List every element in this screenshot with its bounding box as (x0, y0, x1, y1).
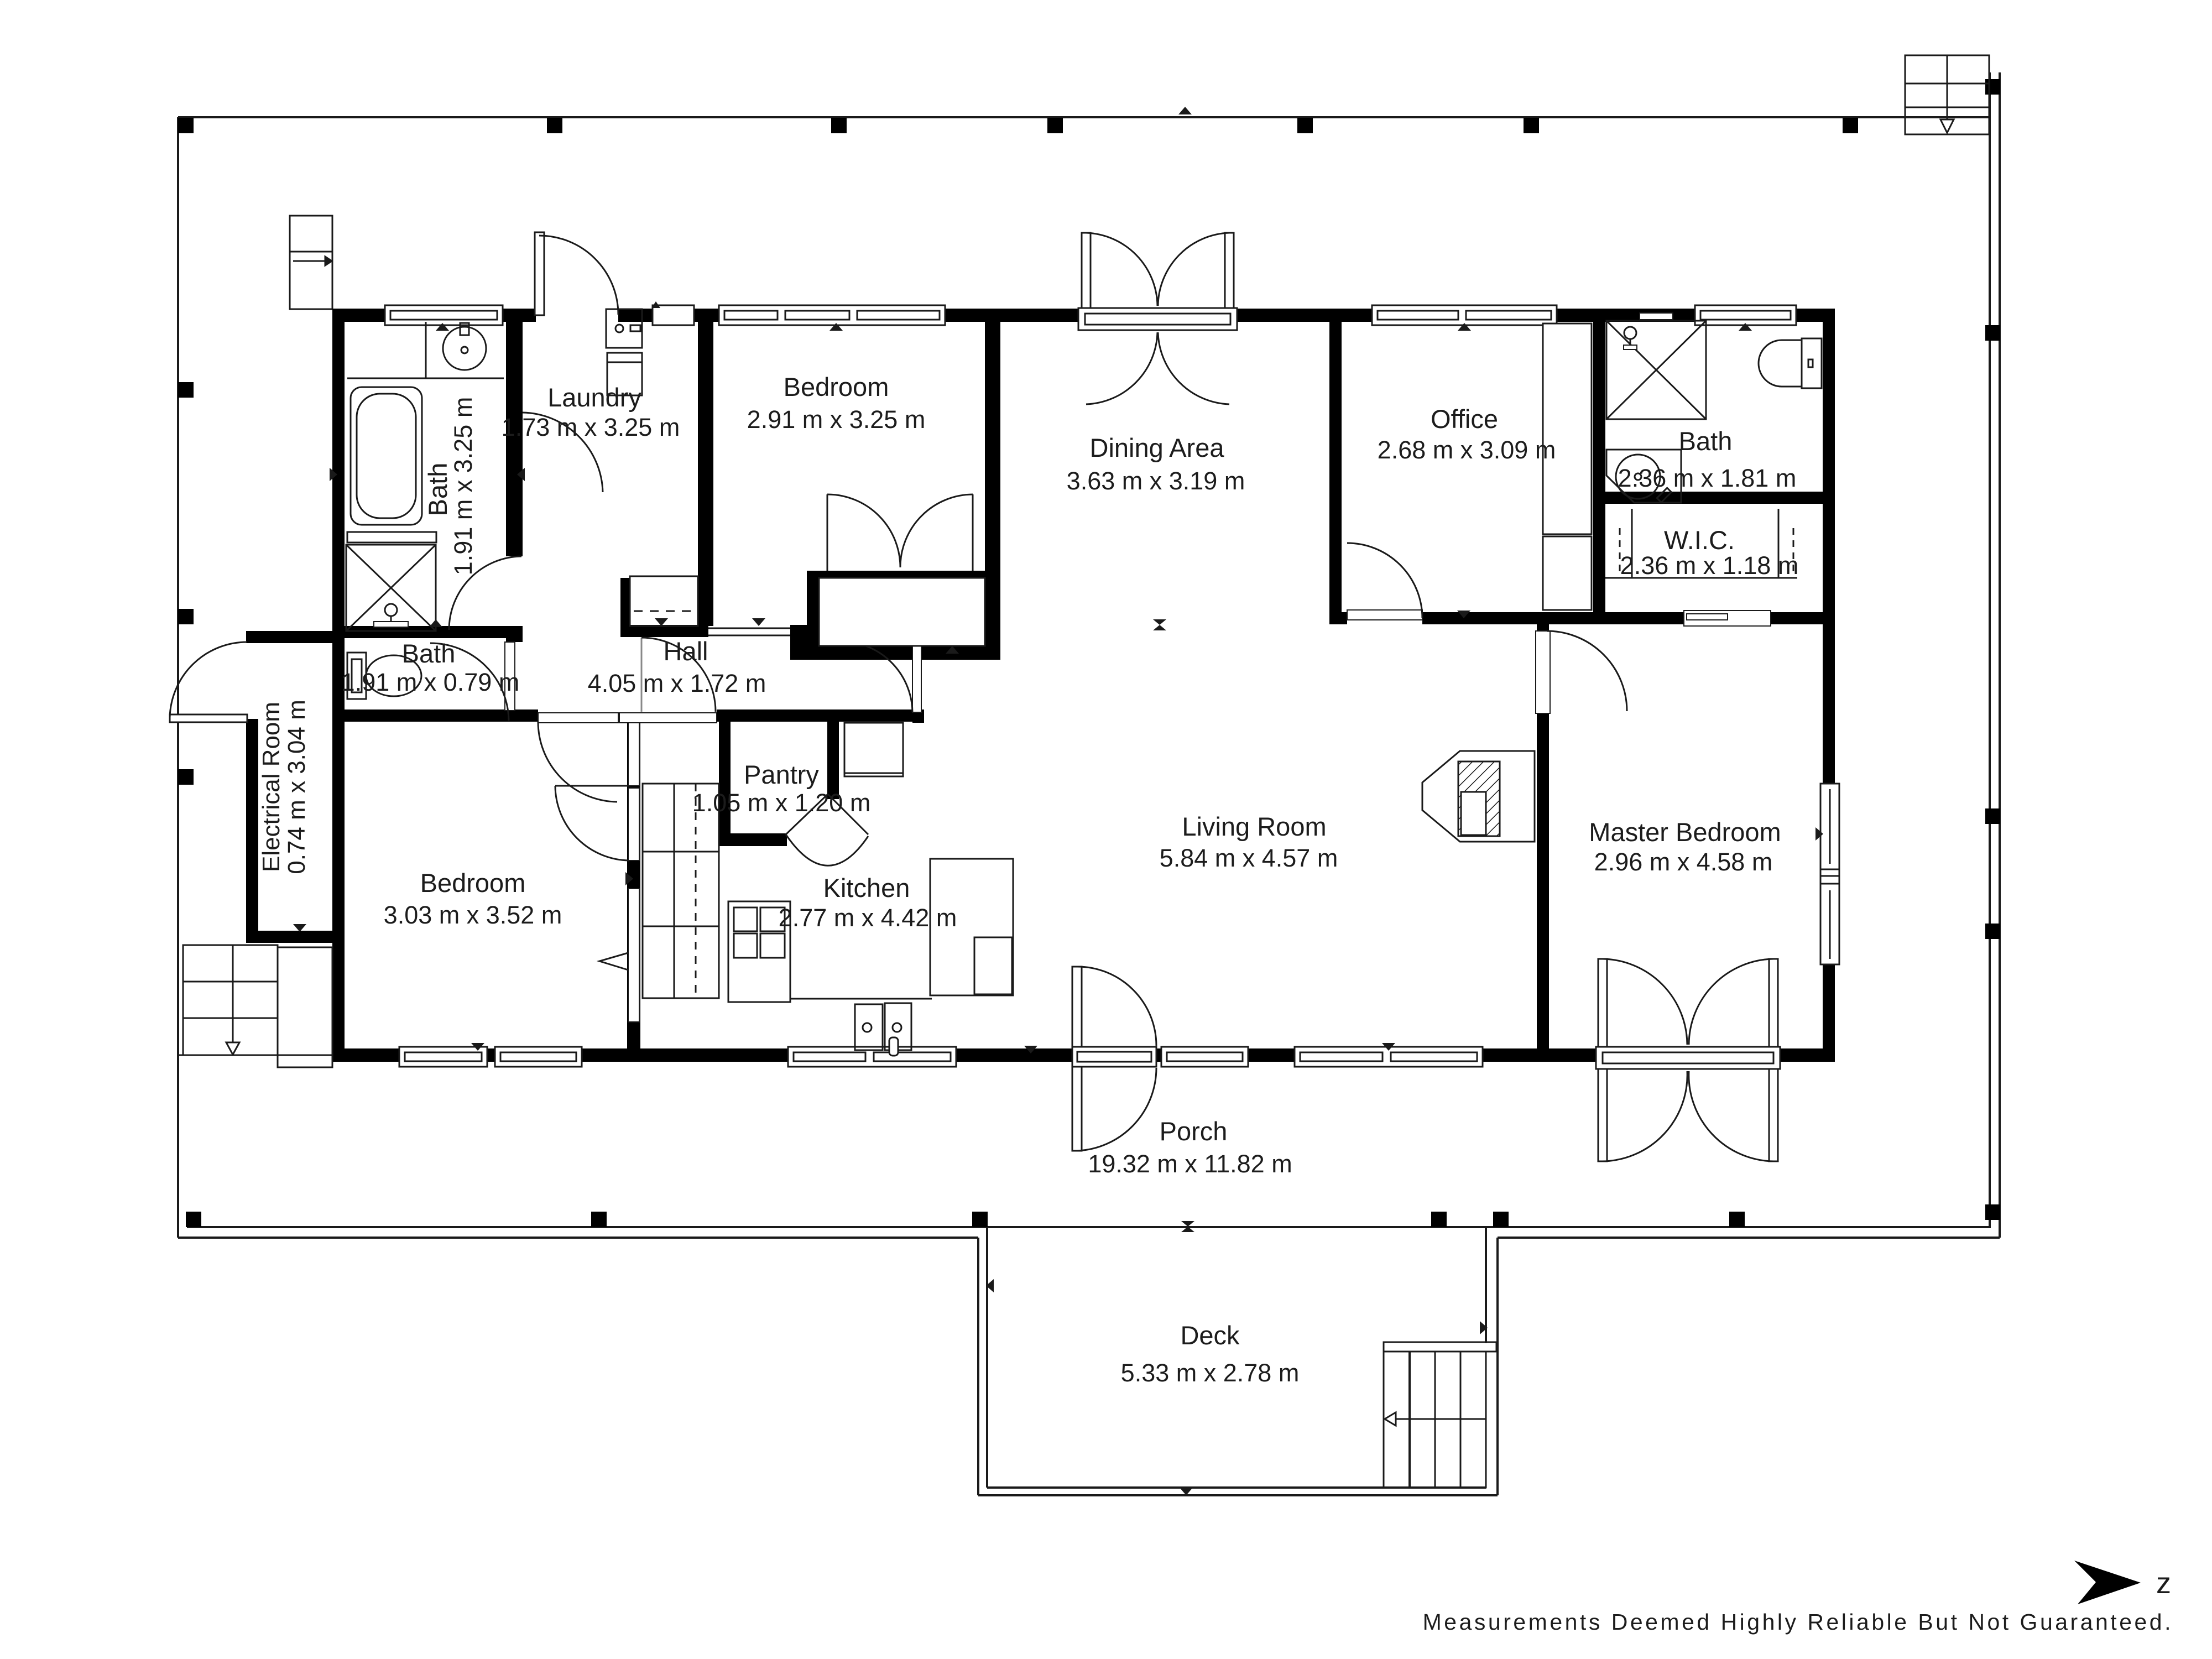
svg-text:Pantry: Pantry (744, 760, 819, 789)
svg-text:Master Bedroom: Master Bedroom (1589, 817, 1781, 847)
svg-text:Measurements Deemed Highly Rel: Measurements Deemed Highly Reliable But … (1423, 1609, 2173, 1635)
svg-text:0.74 m x 3.04 m: 0.74 m x 3.04 m (283, 700, 310, 874)
svg-text:3.03 m x 3.52 m: 3.03 m x 3.52 m (384, 901, 562, 929)
svg-text:Office: Office (1431, 404, 1498, 434)
svg-text:2.91 m x 3.25 m: 2.91 m x 3.25 m (747, 405, 926, 434)
svg-text:5.84 m x 4.57 m: 5.84 m x 4.57 m (1160, 844, 1338, 872)
svg-text:1.91 m x 0.79 m: 1.91 m x 0.79 m (341, 668, 520, 696)
svg-text:2.96 m x 4.58 m: 2.96 m x 4.58 m (1594, 848, 1773, 876)
svg-text:Kitchen: Kitchen (823, 873, 910, 902)
svg-text:2.36 m x 1.81 m: 2.36 m x 1.81 m (1618, 464, 1797, 492)
svg-text:1.73 m x 3.25 m: 1.73 m x 3.25 m (502, 413, 680, 441)
svg-text:4.05 m x 1.72 m: 4.05 m x 1.72 m (588, 669, 766, 697)
svg-text:3.63 m x 3.19 m: 3.63 m x 3.19 m (1067, 467, 1245, 495)
svg-text:Bath: Bath (1679, 426, 1733, 456)
svg-text:Laundry: Laundry (547, 383, 641, 412)
svg-text:W.I.C.: W.I.C. (1664, 525, 1735, 555)
svg-text:1.91 m x 3.25 m: 1.91 m x 3.25 m (449, 397, 477, 576)
svg-text:Bath: Bath (402, 639, 456, 668)
svg-text:Hall: Hall (664, 637, 708, 666)
svg-text:5.33 m x 2.78 m: 5.33 m x 2.78 m (1121, 1359, 1300, 1387)
svg-text:19.32 m x 11.82 m: 19.32 m x 11.82 m (1088, 1150, 1292, 1178)
svg-text:Bedroom: Bedroom (784, 372, 889, 401)
svg-text:1.05 m x 1.20 m: 1.05 m x 1.20 m (692, 789, 871, 817)
svg-text:2.77 m x 4.42 m: 2.77 m x 4.42 m (779, 904, 957, 932)
svg-text:z: z (2156, 1567, 2171, 1600)
svg-text:Bedroom: Bedroom (420, 868, 526, 898)
svg-text:Living Room: Living Room (1182, 812, 1326, 841)
svg-text:2.36 m x 1.18 m: 2.36 m x 1.18 m (1620, 551, 1799, 580)
svg-text:Porch: Porch (1160, 1117, 1228, 1146)
svg-text:Dining Area: Dining Area (1090, 433, 1225, 462)
svg-text:Electrical Room: Electrical Room (258, 702, 285, 872)
svg-text:2.68 m x 3.09 m: 2.68 m x 3.09 m (1378, 436, 1556, 464)
svg-text:Deck: Deck (1180, 1321, 1240, 1350)
svg-text:Bath: Bath (423, 463, 452, 517)
